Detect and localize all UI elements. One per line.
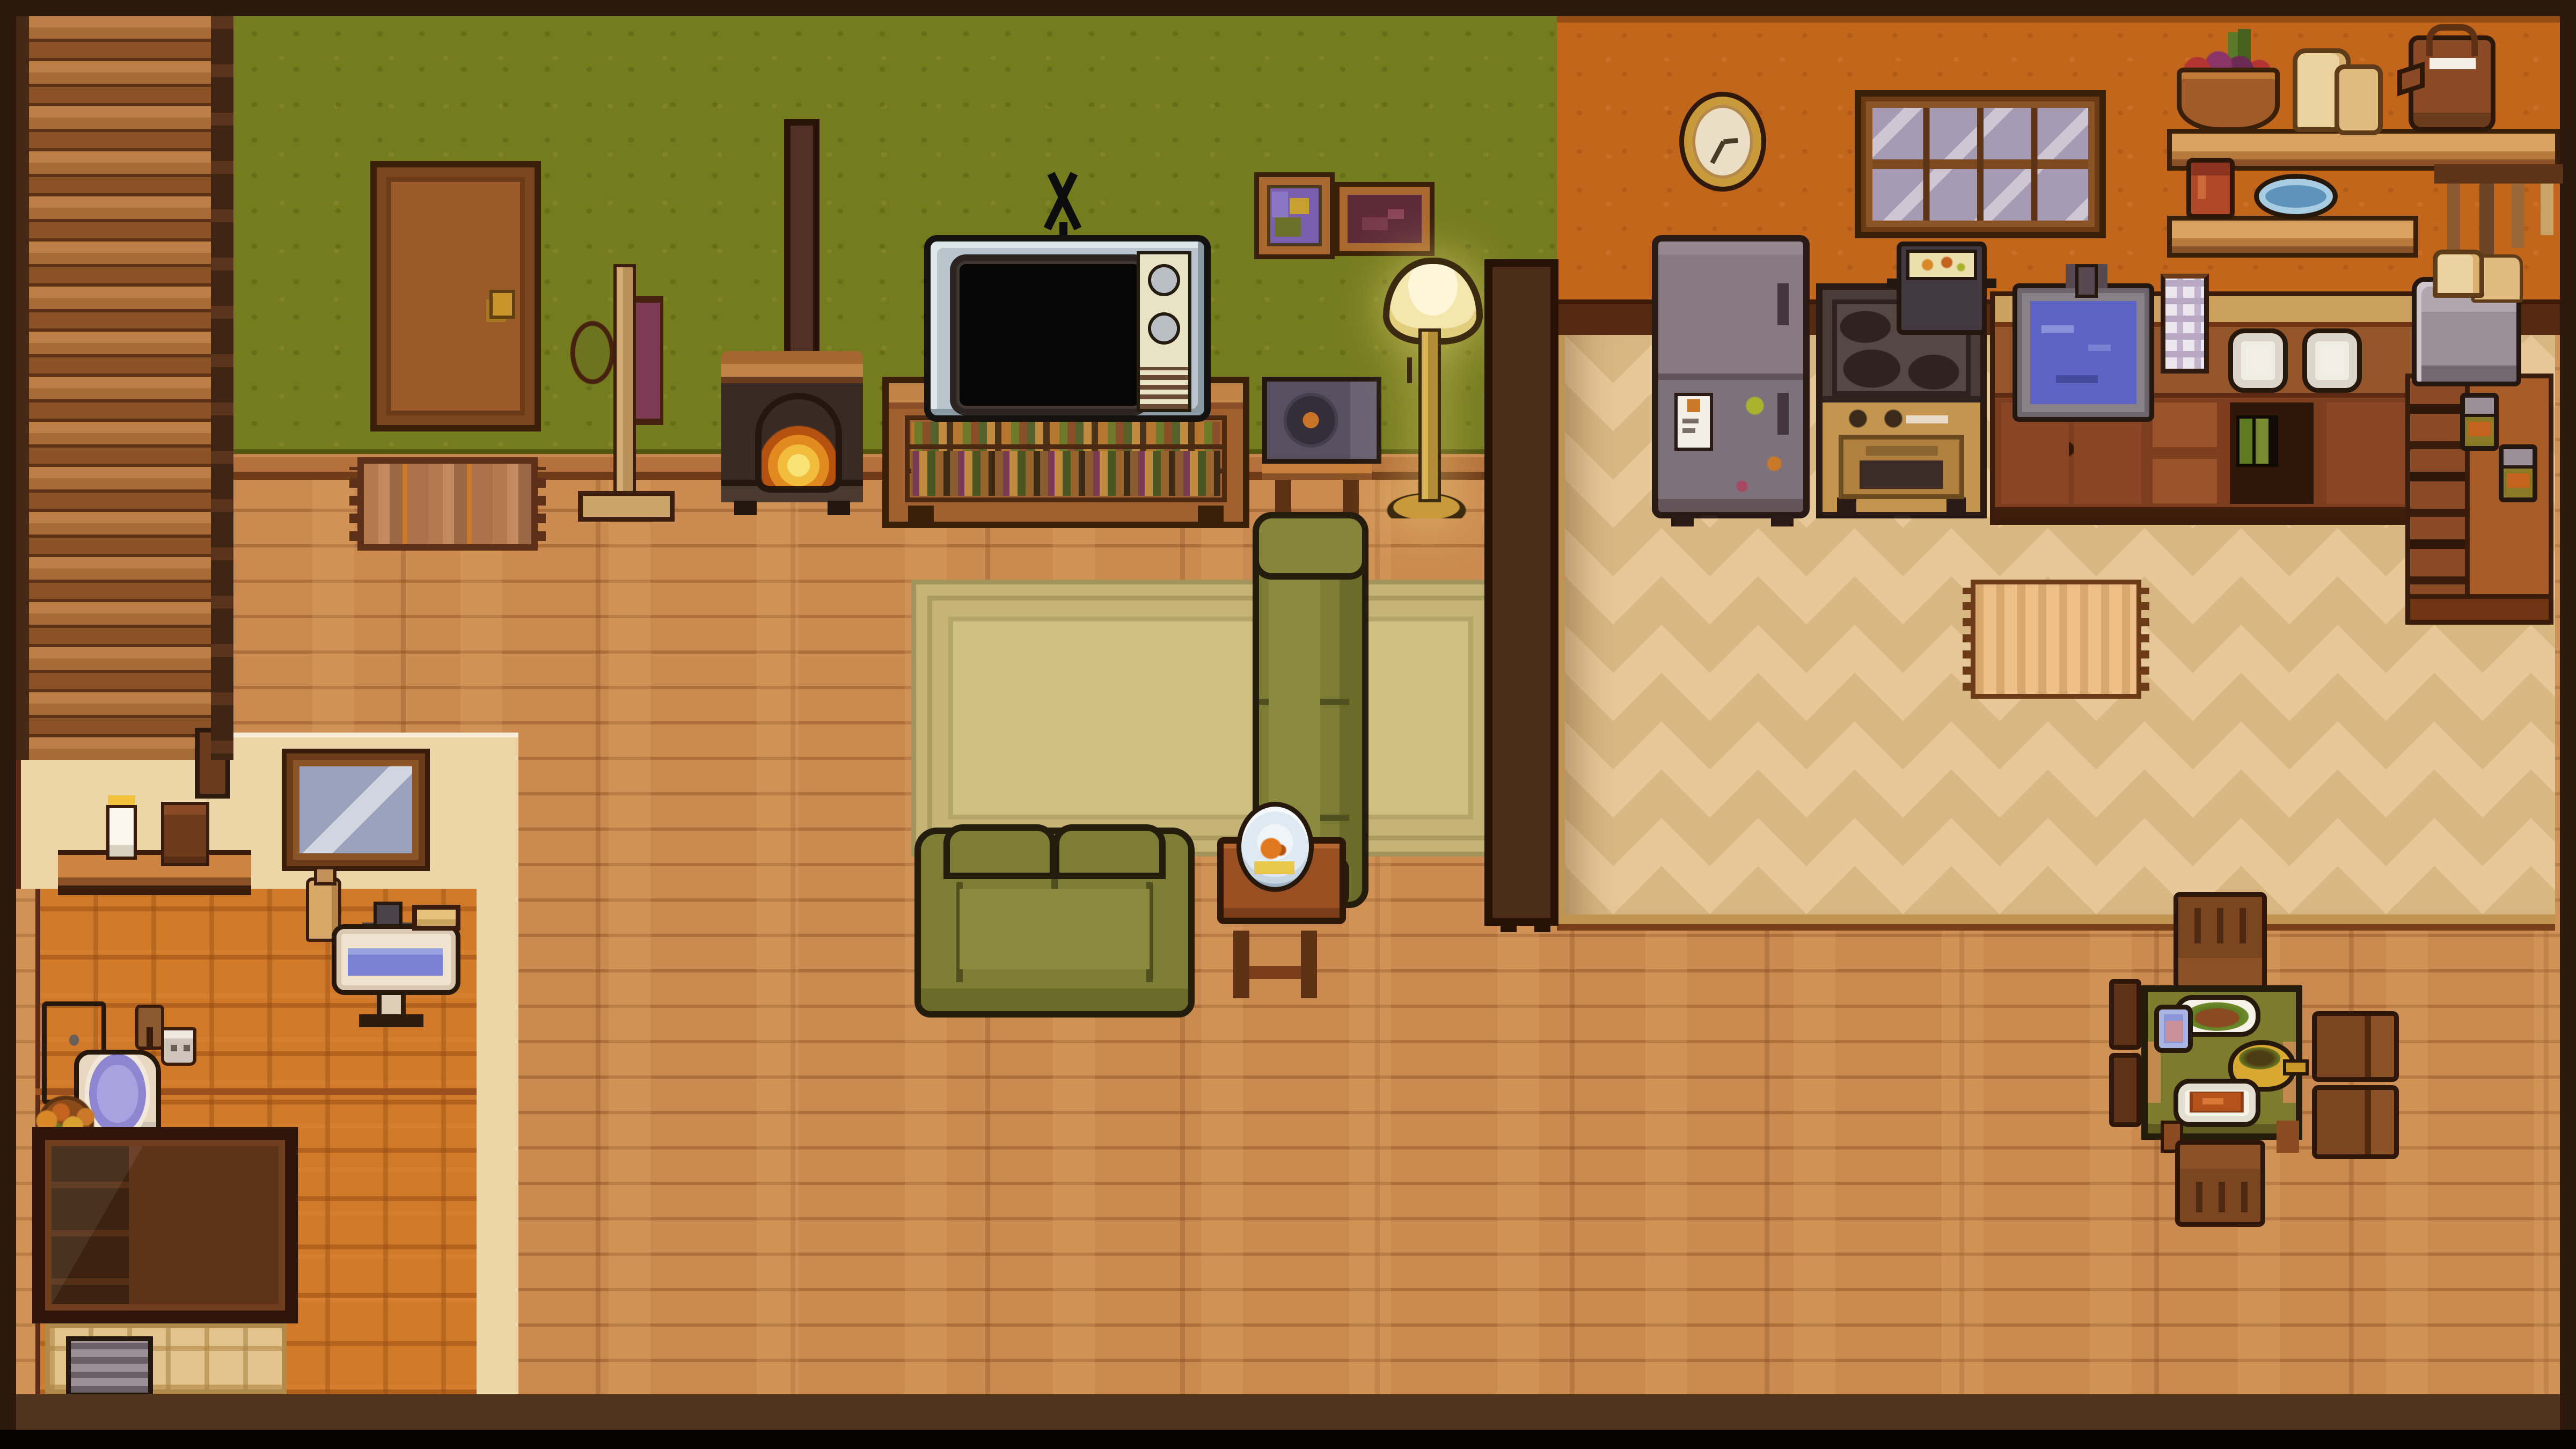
dining-chair-west-2[interactable] xyxy=(2109,1053,2141,1127)
coat-rack[interactable] xyxy=(570,264,673,522)
hand-towel xyxy=(2161,274,2209,374)
dining-chair-west-1[interactable] xyxy=(2109,979,2141,1050)
bathroom-shelf xyxy=(58,802,251,895)
floor-lamp[interactable] xyxy=(1378,258,1475,518)
painting-small xyxy=(1259,177,1330,254)
kettle xyxy=(2409,35,2495,132)
painting-wide xyxy=(1340,187,1430,251)
drink-glass xyxy=(2154,1005,2193,1053)
fruit-bowl xyxy=(2177,29,2280,132)
bath-towel xyxy=(412,905,460,931)
fishbowl[interactable] xyxy=(1236,802,1314,892)
dining-chair-south[interactable] xyxy=(2175,1140,2265,1227)
dining-chair-east-1[interactable] xyxy=(2312,1011,2399,1082)
small-pot xyxy=(161,1027,196,1066)
bread-loaves xyxy=(2293,42,2383,132)
wall-clock xyxy=(1684,97,1761,187)
dining-chair-east-2[interactable] xyxy=(2312,1085,2399,1159)
toaster[interactable] xyxy=(2412,277,2521,386)
kitchen-sink[interactable] xyxy=(2012,283,2154,422)
tv-antenna xyxy=(1014,167,1111,241)
shelf-lower xyxy=(2167,216,2418,258)
stove-chimney xyxy=(784,119,819,361)
front-door[interactable] xyxy=(377,167,535,425)
door-mat xyxy=(357,457,538,551)
frame-bottom-band xyxy=(16,1394,2560,1430)
kitchen-rug xyxy=(1971,580,2141,699)
bathroom-mirror[interactable] xyxy=(287,753,425,866)
partition-wall xyxy=(1484,259,1558,926)
game-viewport xyxy=(0,0,2576,1449)
record-player[interactable] xyxy=(1262,377,1372,515)
retro-tv[interactable] xyxy=(924,235,1211,422)
bath-mat-drain xyxy=(45,1323,287,1394)
red-jar xyxy=(2186,158,2235,219)
staircase[interactable] xyxy=(16,16,233,760)
living-area-rug xyxy=(911,580,1510,857)
shower-stall[interactable] xyxy=(32,1127,298,1323)
frame-black-strip xyxy=(0,1430,2576,1449)
counter-plate-left xyxy=(2228,328,2288,393)
cooking-pot[interactable] xyxy=(1897,241,1987,335)
roast-platter xyxy=(2173,1079,2260,1127)
kitchen-window xyxy=(1855,90,2106,238)
fridge[interactable] xyxy=(1652,235,1810,518)
dining-chair-north[interactable] xyxy=(2173,892,2267,992)
counter-plate-right xyxy=(2302,328,2362,393)
toilet-paper-holder xyxy=(135,1005,164,1050)
blue-dish xyxy=(2254,174,2338,219)
sofa[interactable] xyxy=(914,828,1195,1018)
spice-jar-lower xyxy=(2499,444,2537,502)
bathroom-wall-right xyxy=(477,889,518,1394)
spice-jar-upper xyxy=(2460,393,2499,451)
wood-stove-fireplace[interactable] xyxy=(721,351,863,518)
scene xyxy=(0,0,2576,1449)
